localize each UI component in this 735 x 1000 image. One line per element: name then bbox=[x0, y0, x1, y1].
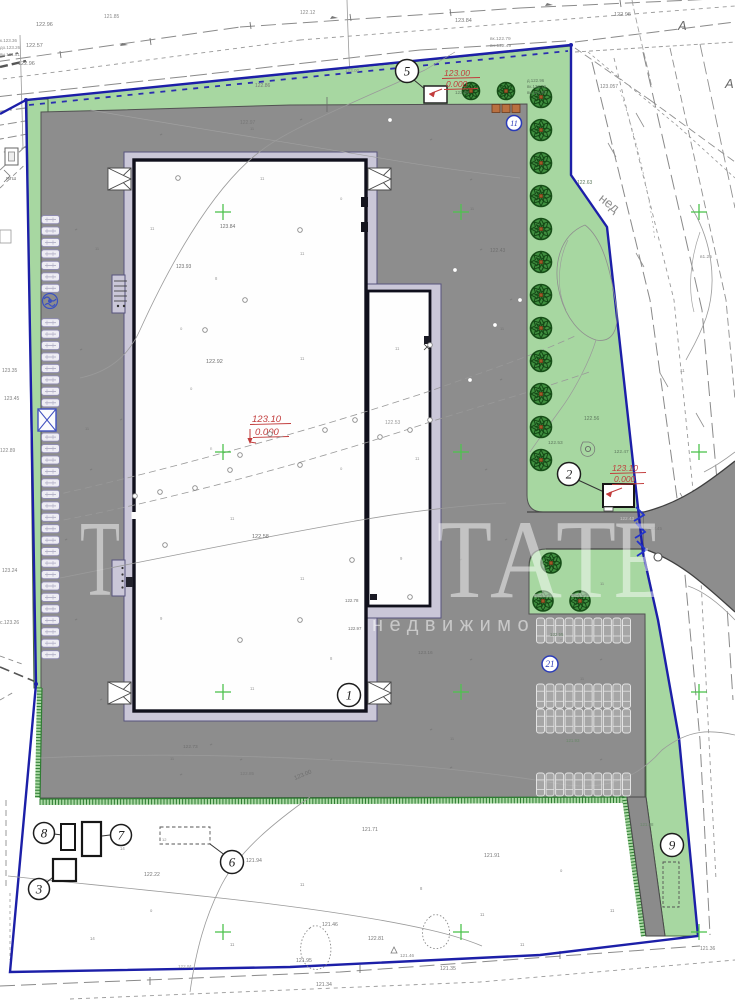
svg-text:123.00: 123.00 bbox=[444, 68, 470, 78]
svg-text:11: 11 bbox=[680, 368, 685, 373]
svg-text:122.84: 122.84 bbox=[455, 90, 469, 95]
svg-text:12: 12 bbox=[162, 837, 167, 842]
svg-text:121.34: 121.34 bbox=[316, 982, 332, 988]
svg-text:123.10: 123.10 bbox=[612, 463, 638, 473]
svg-text:121.91: 121.91 bbox=[484, 853, 500, 859]
svg-text:вн.121.87: вн.121.87 bbox=[527, 90, 547, 95]
svg-text:1: 1 bbox=[346, 688, 353, 703]
svg-text:T: T bbox=[556, 498, 616, 622]
svg-text:вк.122.79: вк.122.79 bbox=[527, 84, 546, 89]
svg-text:123.10: 123.10 bbox=[252, 414, 282, 425]
svg-text:недвижимо: недвижимо bbox=[372, 614, 535, 636]
svg-text:РТШ: РТШ bbox=[6, 176, 16, 182]
svg-text:121.94: 121.94 bbox=[246, 858, 262, 864]
svg-text:E: E bbox=[614, 498, 662, 622]
svg-text:122.43: 122.43 bbox=[490, 248, 506, 254]
svg-text:121.93: 121.93 bbox=[566, 738, 580, 743]
svg-text:123.24: 123.24 bbox=[2, 568, 18, 574]
svg-text:121.95: 121.95 bbox=[296, 958, 312, 964]
svg-text:121.46: 121.46 bbox=[400, 953, 414, 958]
svg-text:122.73: 122.73 bbox=[183, 744, 198, 750]
svg-text:122.53: 122.53 bbox=[548, 440, 563, 446]
svg-text:11: 11 bbox=[300, 251, 305, 256]
svg-text:122.86: 122.86 bbox=[255, 83, 271, 89]
svg-text:14: 14 bbox=[90, 936, 95, 941]
svg-text:11: 11 bbox=[300, 356, 305, 361]
svg-text:122.56: 122.56 bbox=[584, 416, 600, 422]
svg-text:7: 7 bbox=[118, 828, 125, 843]
svg-text:123.35: 123.35 bbox=[2, 368, 18, 374]
svg-text:122.96: 122.96 bbox=[36, 22, 53, 28]
svg-text:123.84: 123.84 bbox=[455, 18, 472, 24]
svg-text:21: 21 bbox=[546, 659, 555, 669]
svg-text:122.81: 122.81 bbox=[368, 936, 384, 942]
svg-text:123.00: 123.00 bbox=[345, 68, 359, 73]
svg-text:14: 14 bbox=[120, 846, 125, 851]
svg-text:до.123.26: до.123.26 bbox=[0, 45, 21, 50]
svg-text:11: 11 bbox=[300, 882, 305, 887]
svg-text:121.71: 121.71 bbox=[362, 827, 378, 833]
svg-text:11: 11 bbox=[480, 912, 485, 917]
svg-text:121.35: 121.35 bbox=[440, 966, 456, 972]
svg-text:11: 11 bbox=[395, 346, 400, 351]
svg-text:123.84: 123.84 bbox=[220, 224, 236, 230]
svg-text:11: 11 bbox=[300, 576, 305, 581]
svg-text:2: 2 bbox=[566, 467, 573, 482]
svg-text:122.63: 122.63 bbox=[577, 180, 593, 186]
svg-text:122.92: 122.92 bbox=[206, 359, 223, 365]
svg-text:122.12: 122.12 bbox=[300, 10, 316, 16]
svg-text:А: А bbox=[677, 18, 687, 33]
svg-text:11: 11 bbox=[230, 942, 235, 947]
svg-text:122.97: 122.97 bbox=[240, 120, 256, 126]
svg-text:11: 11 bbox=[415, 456, 420, 461]
svg-text:122.96: 122.96 bbox=[18, 61, 35, 67]
svg-text:123.057: 123.057 bbox=[600, 84, 618, 90]
svg-text:121.36: 121.36 bbox=[700, 946, 716, 952]
svg-text:в1.25: в1.25 bbox=[700, 254, 712, 260]
svg-text:121.88: 121.88 bbox=[640, 822, 654, 827]
svg-text:A: A bbox=[490, 498, 562, 622]
svg-text:вн.122.49: вн.122.49 bbox=[490, 43, 512, 49]
svg-text:122.22: 122.22 bbox=[144, 872, 160, 878]
svg-text:122.57: 122.57 bbox=[26, 43, 43, 49]
svg-text:11: 11 bbox=[260, 176, 265, 181]
svg-text:123.45: 123.45 bbox=[4, 396, 20, 402]
svg-text:5: 5 bbox=[404, 64, 411, 79]
svg-text:122.96: 122.96 bbox=[614, 12, 631, 18]
svg-text:121.46: 121.46 bbox=[322, 922, 338, 928]
svg-text:122.58: 122.58 bbox=[252, 534, 269, 540]
svg-text:123.16: 123.16 bbox=[418, 650, 433, 656]
svg-text:11: 11 bbox=[510, 119, 517, 128]
svg-text:11: 11 bbox=[150, 226, 155, 231]
svg-text:122.78: 122.78 bbox=[345, 598, 359, 603]
svg-text:0.000: 0.000 bbox=[614, 474, 636, 484]
svg-text:122.89: 122.89 bbox=[0, 448, 16, 454]
svg-text:121.85: 121.85 bbox=[104, 14, 120, 20]
svg-text:д.122.96: д.122.96 bbox=[527, 78, 545, 83]
svg-text:с.123.26: с.123.26 bbox=[0, 620, 19, 626]
svg-text:122.97: 122.97 bbox=[348, 626, 362, 631]
svg-text:11: 11 bbox=[520, 942, 525, 947]
svg-text:9: 9 bbox=[669, 838, 676, 853]
svg-text:к.123.36: к.123.36 bbox=[0, 38, 17, 43]
svg-text:вн.121.51: вн.121.51 bbox=[0, 52, 20, 57]
svg-text:6: 6 bbox=[229, 855, 236, 870]
svg-text:11: 11 bbox=[250, 686, 255, 691]
svg-text:11: 11 bbox=[610, 908, 615, 913]
svg-text:8: 8 bbox=[41, 826, 48, 841]
svg-text:122.53: 122.53 bbox=[385, 420, 401, 426]
svg-text:11: 11 bbox=[230, 516, 235, 521]
svg-text:0.000: 0.000 bbox=[255, 427, 279, 438]
svg-text:T: T bbox=[437, 498, 492, 622]
svg-text:А: А bbox=[724, 76, 734, 91]
svg-text:3: 3 bbox=[35, 882, 43, 897]
svg-text:122.47: 122.47 bbox=[614, 449, 629, 455]
svg-text:122.55: 122.55 bbox=[550, 632, 564, 637]
svg-text:123.93: 123.93 bbox=[176, 264, 192, 270]
svg-text:122.91: 122.91 bbox=[178, 964, 192, 969]
svg-text:T: T bbox=[80, 500, 120, 619]
svg-text:вк.122.79: вк.122.79 bbox=[490, 36, 511, 42]
svg-text:122.85: 122.85 bbox=[240, 771, 254, 776]
svg-text:0.000: 0.000 bbox=[446, 79, 468, 89]
